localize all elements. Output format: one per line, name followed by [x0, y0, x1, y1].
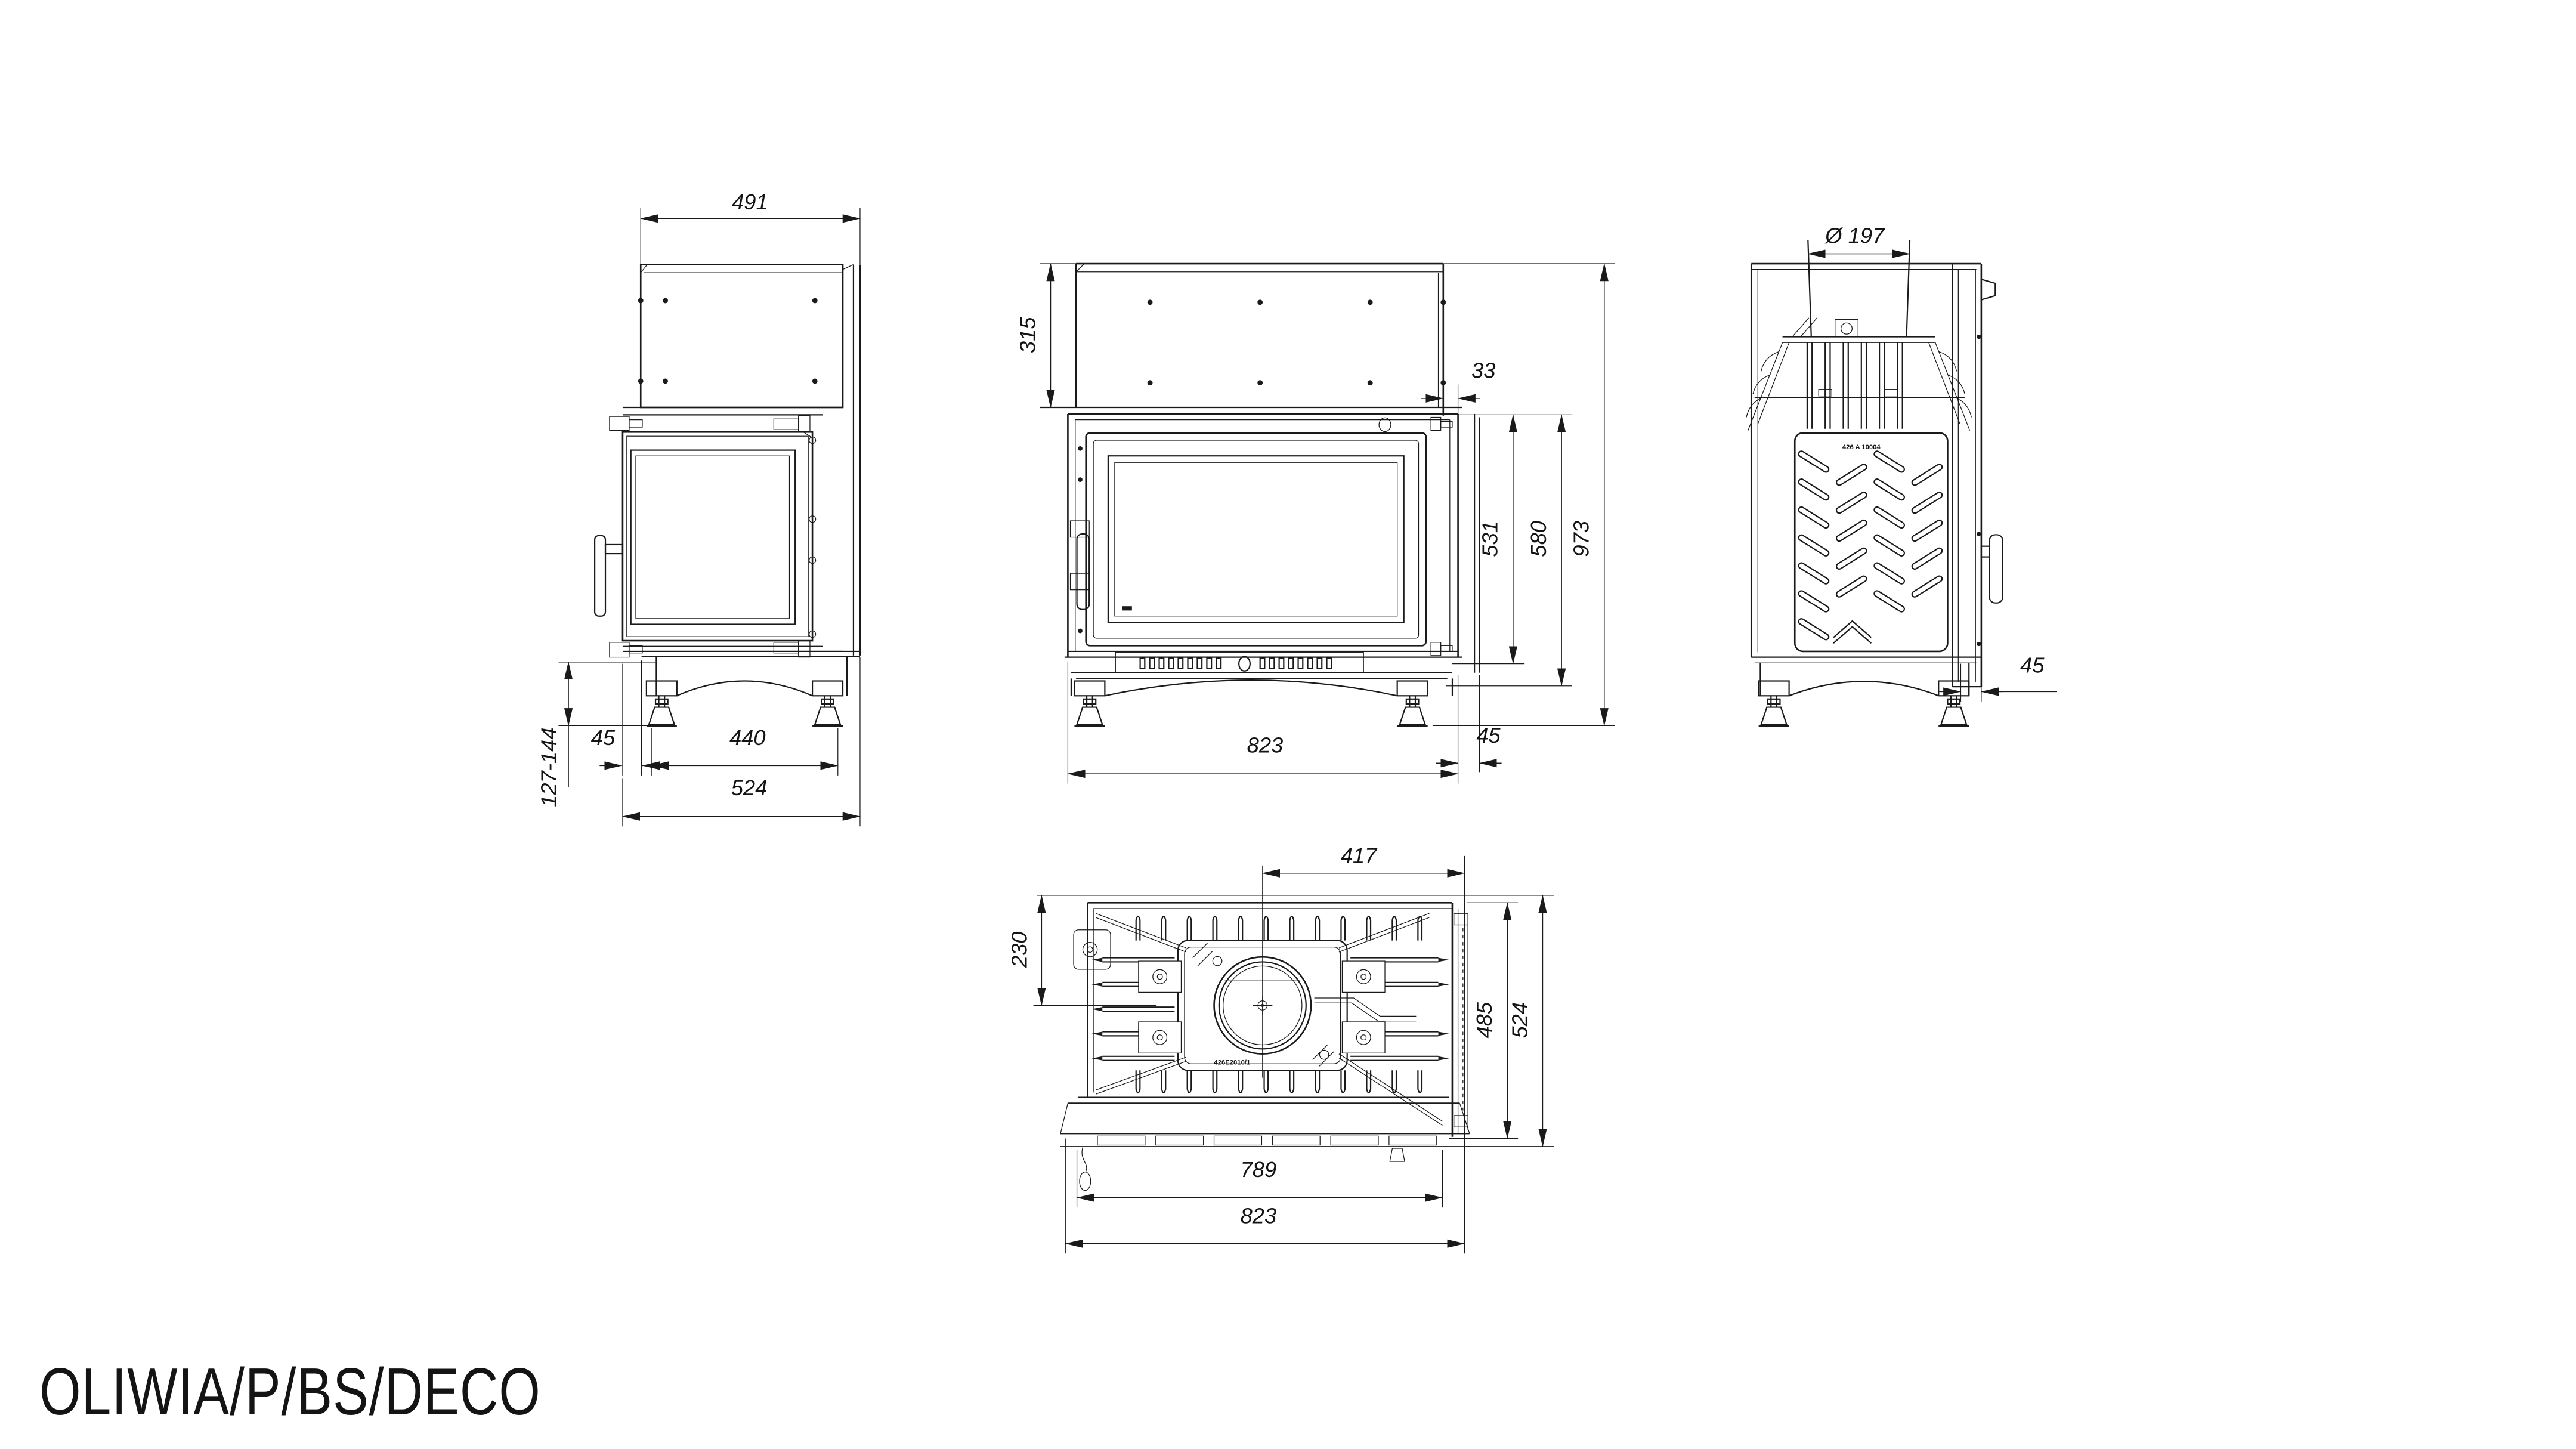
front-vent-combs — [1097, 1136, 1437, 1145]
dim-feet-spacing: 440 — [729, 725, 766, 750]
dim-total-depth-plan: 524 — [1507, 1002, 1532, 1039]
dim-front-overhang: 45 — [591, 725, 616, 750]
view-side-left: 491 127-144 45 440 524 — [536, 190, 860, 826]
chevron-pattern — [1798, 450, 1943, 644]
dim-top-depth: 491 — [732, 190, 768, 214]
vent-slots — [1140, 658, 1332, 669]
collar-ribs — [1807, 342, 1903, 429]
door-frame — [1086, 433, 1426, 646]
dim-depth-to-front-edge: 485 — [1472, 1002, 1496, 1038]
dim-flue-center-from-right: 417 — [1341, 844, 1378, 868]
flue-pipe — [1808, 240, 1811, 336]
door-handle — [595, 536, 605, 616]
deco-side-panel — [1795, 433, 1947, 651]
page-title: OLIWIA/P/BS/DECO — [39, 1355, 541, 1429]
dim-door-height: 531 — [1478, 521, 1502, 557]
door-handle-link — [605, 545, 623, 554]
fireplace-technical-drawing: 491 127-144 45 440 524 — [0, 0, 2576, 1449]
view-front: 315 33 531 580 973 823 45 — [1015, 264, 1615, 784]
dim-total-width-plan: 823 — [1241, 1203, 1277, 1228]
dim-flue-diameter: Ø 197 — [1824, 224, 1885, 248]
dim-foot-height-range: 127-144 — [536, 727, 561, 807]
dim-front-width: 789 — [1241, 1157, 1277, 1182]
casting-number-plan: 426E2010/1 — [1214, 1059, 1250, 1067]
dim-total-height: 973 — [1569, 521, 1594, 557]
side-handle — [1990, 535, 2003, 603]
view-plan: 426E2010/1 — [1007, 844, 1554, 1253]
cooling-fins-front — [1136, 1070, 1422, 1093]
dim-base-depth: 524 — [731, 776, 768, 800]
latch-knob — [1981, 279, 1995, 299]
dim-rear-offset: 33 — [1471, 358, 1495, 382]
side-handle-link — [1981, 546, 1990, 557]
dim-width: 823 — [1247, 733, 1284, 757]
brand-logo-mark — [1122, 606, 1132, 610]
view-side-right: Ø 197 426 A 10004 — [1746, 224, 2057, 726]
dim-upper-chamber-height: 315 — [1015, 317, 1040, 353]
dim-side-offset: 45 — [2020, 653, 2045, 678]
door-glass — [1108, 456, 1404, 623]
air-control-knob — [1239, 656, 1250, 671]
dim-firebox-height: 580 — [1526, 521, 1551, 557]
front-handle — [1077, 534, 1090, 610]
casting-number-side: 426 A 10004 — [1842, 444, 1881, 451]
dim-flue-center-from-back: 230 — [1007, 931, 1032, 968]
dim-side-panel-offset: 45 — [1476, 723, 1501, 747]
thermo-cable — [1082, 1148, 1087, 1172]
